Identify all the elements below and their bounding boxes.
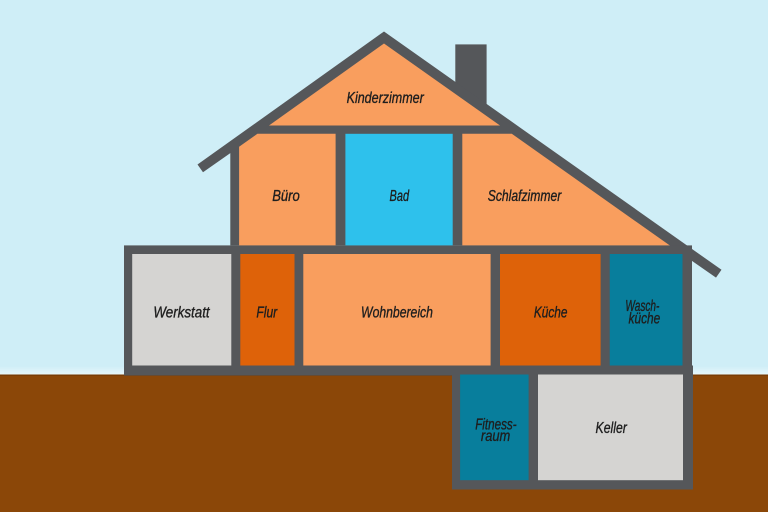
svg-text:Büro: Büro: [272, 188, 300, 205]
svg-text:Kinderzimmer: Kinderzimmer: [347, 90, 425, 107]
svg-text:Keller: Keller: [596, 420, 628, 437]
svg-text:Werkstatt: Werkstatt: [153, 305, 210, 322]
svg-text:Flur: Flur: [256, 305, 277, 322]
svg-text:raum: raum: [481, 428, 510, 445]
svg-text:Bad: Bad: [390, 188, 410, 205]
svg-text:küche: küche: [629, 311, 661, 328]
svg-text:Küche: Küche: [534, 305, 568, 322]
svg-text:Wohnbereich: Wohnbereich: [361, 305, 433, 322]
svg-text:Schlafzimmer: Schlafzimmer: [488, 188, 562, 205]
